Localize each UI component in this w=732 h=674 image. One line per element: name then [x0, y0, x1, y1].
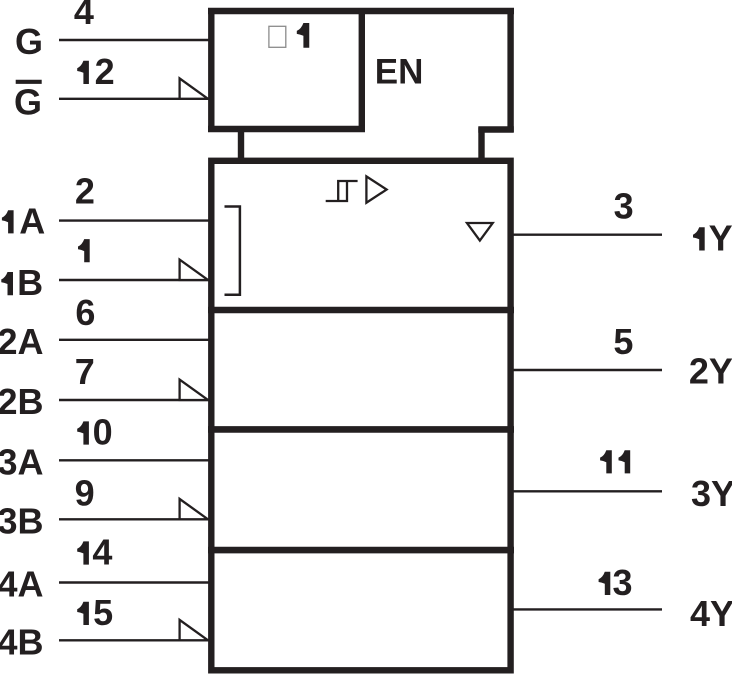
svg-text:3B: 3B	[0, 501, 44, 542]
svg-text:6: 6	[75, 292, 95, 333]
svg-text:G: G	[14, 82, 42, 123]
svg-text:3: 3	[614, 186, 634, 227]
svg-text:5: 5	[93, 592, 113, 633]
svg-text:B: B	[17, 262, 43, 303]
svg-text:0: 0	[93, 412, 113, 453]
svg-text:EN: EN	[375, 52, 424, 91]
svg-text:4: 4	[74, 0, 94, 32]
svg-text:3A: 3A	[0, 442, 44, 483]
svg-text:4: 4	[92, 532, 112, 573]
svg-text:2A: 2A	[0, 321, 44, 362]
svg-text:A: A	[19, 200, 45, 241]
svg-text:2: 2	[75, 170, 95, 211]
svg-text:5: 5	[613, 321, 633, 362]
svg-text:2Y: 2Y	[689, 350, 732, 391]
svg-text:7: 7	[75, 351, 95, 392]
svg-text:4Y: 4Y	[690, 593, 732, 634]
svg-text:4B: 4B	[0, 622, 44, 663]
svg-text:Y: Y	[709, 218, 732, 259]
svg-text:4A: 4A	[0, 564, 44, 605]
svg-text:G: G	[15, 21, 43, 62]
svg-text:9: 9	[75, 473, 95, 514]
svg-text:3Y: 3Y	[691, 473, 732, 514]
svg-text:2: 2	[95, 51, 115, 92]
svg-text:3: 3	[613, 562, 633, 603]
svg-text:2B: 2B	[0, 381, 44, 422]
